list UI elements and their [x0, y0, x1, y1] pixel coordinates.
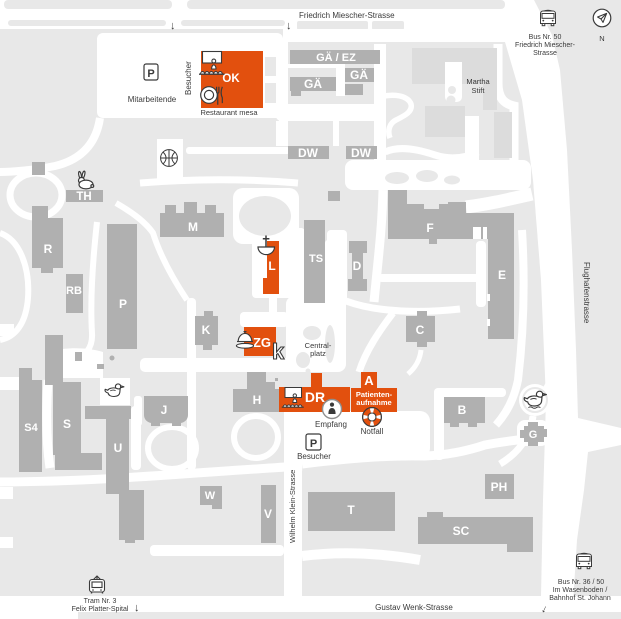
svg-text:TH: TH	[76, 191, 91, 203]
svg-text:Friedrich Miescher-: Friedrich Miescher-	[515, 42, 576, 49]
svg-text:DR: DR	[305, 389, 325, 405]
svg-text:Friedrich Miescher-Strasse: Friedrich Miescher-Strasse	[299, 11, 395, 20]
svg-text:Stift: Stift	[472, 86, 486, 95]
svg-text:R: R	[44, 242, 53, 256]
svg-text:ZG: ZG	[253, 335, 271, 350]
svg-text:Bus Nr. 50: Bus Nr. 50	[529, 34, 562, 41]
svg-text:E: E	[498, 268, 506, 282]
svg-text:RB: RB	[66, 285, 82, 297]
svg-text:K: K	[202, 323, 211, 337]
svg-text:U: U	[114, 441, 123, 455]
svg-text:L: L	[268, 259, 275, 273]
svg-text:Tram Nr. 3: Tram Nr. 3	[84, 598, 117, 605]
svg-text:PH: PH	[491, 480, 508, 494]
svg-text:V: V	[264, 507, 272, 521]
svg-text:DW: DW	[351, 146, 372, 160]
svg-text:GÄ: GÄ	[350, 67, 368, 82]
svg-text:H: H	[253, 393, 262, 407]
svg-text:DW: DW	[298, 146, 319, 160]
svg-text:P: P	[147, 68, 154, 80]
svg-text:Gustav Wenk-Strasse: Gustav Wenk-Strasse	[375, 603, 453, 612]
svg-text:SC: SC	[453, 524, 470, 538]
svg-text:aufnahme: aufnahme	[356, 398, 391, 407]
svg-text:↓: ↓	[170, 20, 176, 32]
svg-text:Bus Nr. 36 / 50: Bus Nr. 36 / 50	[558, 579, 604, 586]
svg-text:D: D	[353, 259, 362, 273]
svg-text:W: W	[205, 490, 216, 502]
svg-text:F: F	[426, 221, 433, 235]
svg-text:GÄ / EZ: GÄ / EZ	[316, 51, 356, 64]
svg-text:Strasse: Strasse	[533, 50, 557, 57]
svg-text:Im Wasenboden /: Im Wasenboden /	[553, 587, 608, 594]
svg-text:k: k	[272, 339, 285, 364]
svg-text:↓: ↓	[134, 602, 140, 614]
svg-text:M: M	[188, 220, 198, 234]
svg-text:Notfall: Notfall	[361, 427, 384, 436]
svg-text:OK: OK	[222, 73, 240, 85]
svg-text:J: J	[161, 403, 168, 417]
svg-text:Bahnhof St. Johann: Bahnhof St. Johann	[549, 595, 611, 602]
svg-text:Mitarbeitende: Mitarbeitende	[128, 95, 177, 104]
svg-text:Martha: Martha	[466, 77, 490, 86]
svg-text:platz: platz	[310, 349, 326, 358]
svg-text:Flughafenstrasse: Flughafenstrasse	[582, 262, 591, 324]
svg-text:B: B	[458, 403, 467, 417]
svg-text:P: P	[119, 297, 127, 311]
svg-text:Wilhelm Klein-Strasse: Wilhelm Klein-Strasse	[288, 470, 297, 543]
svg-text:S4: S4	[24, 422, 38, 434]
svg-text:A: A	[364, 373, 374, 388]
svg-text:N: N	[599, 34, 604, 43]
svg-text:Besucher: Besucher	[297, 452, 331, 461]
svg-text:Besucher: Besucher	[184, 61, 193, 95]
svg-text:Empfang: Empfang	[315, 420, 347, 429]
svg-text:Felix Platter-Spital: Felix Platter-Spital	[72, 606, 129, 613]
svg-text:Restaurant mesa: Restaurant mesa	[200, 108, 258, 117]
svg-text:P: P	[310, 438, 317, 450]
svg-text:S: S	[63, 417, 71, 431]
svg-text:T: T	[347, 503, 355, 517]
svg-text:C: C	[416, 323, 425, 337]
svg-text:TS: TS	[309, 253, 323, 265]
svg-text:↓: ↓	[286, 20, 292, 32]
svg-text:G: G	[529, 429, 538, 441]
svg-text:GÄ: GÄ	[304, 76, 322, 91]
